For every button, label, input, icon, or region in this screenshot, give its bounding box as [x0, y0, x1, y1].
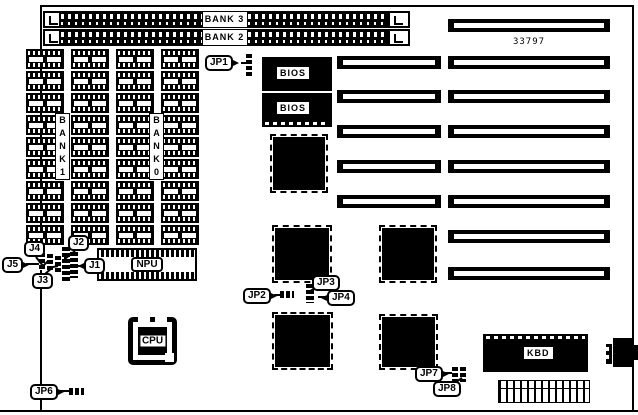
callout-jp2: JP2: [243, 288, 271, 304]
slot-stripe: [454, 60, 604, 65]
memory-dip-chip: [26, 71, 64, 91]
callout-jp7: JP7: [415, 366, 443, 382]
j2-pins: [62, 247, 70, 282]
qfp-chip: [382, 317, 435, 367]
motherboard-diagram: BANK 3 BANK 2 B A N K 1 B A N K 0 BIOS B…: [0, 0, 638, 415]
callout-j1-label: J1: [89, 260, 100, 271]
expansion-slot-short: [337, 90, 441, 103]
din-notch: [606, 347, 609, 351]
expansion-slot-long: [448, 267, 610, 280]
socket-pin-band: [99, 272, 195, 279]
callout-jp8-label: JP8: [438, 383, 456, 394]
callout-j5-label: J5: [7, 259, 18, 270]
callout-jp1-label: JP1: [210, 57, 228, 68]
slot-stripe: [343, 129, 435, 134]
expansion-slot-long: [448, 125, 610, 138]
memory-dip-chip: [71, 93, 109, 113]
expansion-slot-long: [448, 56, 610, 69]
qfp-chip: [382, 228, 434, 280]
memory-dip-chip: [71, 203, 109, 223]
simm-latch-icon: [388, 11, 410, 28]
memory-dip-chip: [161, 49, 199, 69]
cpu-notch-icon: [155, 317, 167, 322]
din-keyboard-connector: [613, 338, 634, 367]
qfp-chip: [275, 228, 329, 280]
callout-jp3: JP3: [312, 275, 340, 291]
memory-dip-chip: [161, 115, 199, 135]
bios-chip-bottom: BIOS: [262, 93, 332, 127]
slot-stripe: [343, 199, 435, 204]
simm-latch-icon: [43, 29, 61, 46]
callout-j4-label: J4: [29, 243, 40, 254]
bios-top-label: BIOS: [276, 66, 310, 80]
bank2-label: BANK 2: [202, 29, 248, 46]
simm-pin-bar: [61, 29, 202, 46]
j1-pins: [70, 252, 78, 278]
callout-j1: J1: [84, 258, 105, 274]
kbd-chip: KBD: [483, 334, 588, 372]
slot-stripe: [454, 271, 604, 276]
j4-pins: [47, 254, 53, 271]
expansion-slot-short: [337, 56, 441, 69]
slot-stripe: [343, 164, 435, 169]
simm-pin-bar: [248, 11, 389, 28]
simm-pin-bar: [248, 29, 389, 46]
din-notch: [606, 355, 609, 359]
slot-stripe: [454, 23, 604, 28]
kbd-label: KBD: [523, 346, 554, 360]
bios-chip-top: BIOS: [262, 57, 332, 91]
bank0-vertical-label: B A N K 0: [149, 113, 164, 180]
callout-j5: J5: [2, 257, 23, 273]
memory-dip-chip: [116, 181, 154, 201]
jp2-pins: [280, 291, 294, 298]
jp6-pins: [69, 388, 84, 395]
bank3-label: BANK 3: [202, 11, 248, 28]
slot-stripe: [343, 60, 435, 65]
memory-dip-chip: [71, 181, 109, 201]
jp8-pins: [460, 367, 466, 382]
header-pin-row: [499, 381, 589, 389]
callout-j2: J2: [68, 235, 89, 251]
memory-dip-chip: [161, 203, 199, 223]
memory-dip-chip: [71, 71, 109, 91]
simm-latch-icon: [388, 29, 410, 46]
slot-stripe: [454, 199, 604, 204]
expansion-slot-long: [448, 160, 610, 173]
slot-stripe: [454, 234, 604, 239]
memory-dip-chip: [71, 115, 109, 135]
slot-stripe: [343, 94, 435, 99]
memory-dip-array: [26, 49, 199, 245]
memory-dip-chip: [116, 49, 154, 69]
chip-pin-dots: [486, 336, 585, 339]
memory-dip-chip: [161, 181, 199, 201]
callout-j2-label: J2: [73, 237, 84, 248]
memory-dip-chip: [161, 159, 199, 179]
callout-jp7-label: JP7: [420, 368, 438, 379]
npu-label: NPU: [131, 257, 162, 272]
cpu-socket: CPU: [128, 317, 177, 365]
callout-j3-label: J3: [37, 275, 48, 286]
memory-dip-chip: [161, 225, 199, 245]
arrow-left-icon: [321, 294, 329, 302]
qfp-chip: [273, 137, 325, 190]
arrow-right-icon: [56, 388, 64, 396]
memory-dip-chip: [26, 203, 64, 223]
slot-stripe: [454, 164, 604, 169]
j3-pins: [55, 256, 61, 273]
qfp-chip: [275, 315, 330, 367]
callout-jp6-label: JP6: [35, 386, 53, 397]
header-pin-row: [499, 389, 589, 402]
arrow-right-icon: [269, 292, 277, 300]
simm-slot-bank2: BANK 2: [43, 29, 410, 46]
cpu-label: CPU: [139, 335, 166, 348]
part-number: 33797: [503, 37, 555, 47]
cpu-notch-icon: [138, 317, 150, 322]
callout-jp2-label: JP2: [248, 290, 266, 301]
memory-dip-chip: [71, 49, 109, 69]
memory-dip-chip: [71, 159, 109, 179]
cpu-corner-notch: [165, 353, 174, 362]
memory-dip-chip: [26, 181, 64, 201]
callout-jp1: JP1: [205, 55, 233, 71]
simm-pin-bar: [61, 11, 202, 28]
expansion-slot-long: [448, 230, 610, 243]
callout-j3: J3: [32, 273, 53, 289]
arrow-left-icon: [78, 262, 86, 270]
memory-dip-chip: [161, 137, 199, 157]
memory-dip-chip: [116, 225, 154, 245]
keyboard-header-connector: [498, 380, 590, 403]
arrow-right-icon: [231, 59, 239, 67]
socket-pin-band: [99, 250, 195, 257]
memory-dip-chip: [26, 49, 64, 69]
memory-dip-chip: [71, 137, 109, 157]
callout-jp3-label: JP3: [317, 277, 335, 288]
chip-pin-dots: [265, 122, 329, 125]
npu-socket: NPU: [97, 248, 197, 281]
din-connector-pins: [606, 344, 612, 364]
memory-dip-chip: [161, 71, 199, 91]
expansion-slot-long: [448, 195, 610, 208]
slot-stripe: [454, 94, 604, 99]
bios-bottom-label: BIOS: [276, 101, 310, 115]
expansion-slot-short: [337, 160, 441, 173]
callout-jp6: JP6: [30, 384, 58, 400]
callout-jp4: JP4: [327, 290, 355, 306]
expansion-slot: [448, 19, 610, 32]
jp7-pins: [452, 367, 458, 381]
jp1-pins: [246, 54, 252, 77]
expansion-slot-long: [448, 90, 610, 103]
memory-dip-chip: [161, 93, 199, 113]
board-bottom-edge: [0, 410, 638, 412]
memory-dip-chip: [116, 71, 154, 91]
simm-latch-icon: [43, 11, 61, 28]
arrow-right-icon: [441, 370, 449, 378]
din-connector-tab: [634, 345, 638, 360]
memory-dip-chip: [116, 203, 154, 223]
expansion-slot-short: [337, 195, 441, 208]
simm-slot-bank3: BANK 3: [43, 11, 410, 28]
callout-jp4-label: JP4: [332, 292, 350, 303]
bank1-vertical-label: B A N K 1: [55, 113, 70, 180]
memory-dip-chip: [26, 93, 64, 113]
callout-jp8: JP8: [433, 381, 461, 397]
callout-j4: J4: [24, 241, 45, 257]
expansion-slot-short: [337, 125, 441, 138]
memory-dip-chip: [116, 93, 154, 113]
arrow-right-icon: [21, 261, 29, 269]
slot-stripe: [454, 129, 604, 134]
